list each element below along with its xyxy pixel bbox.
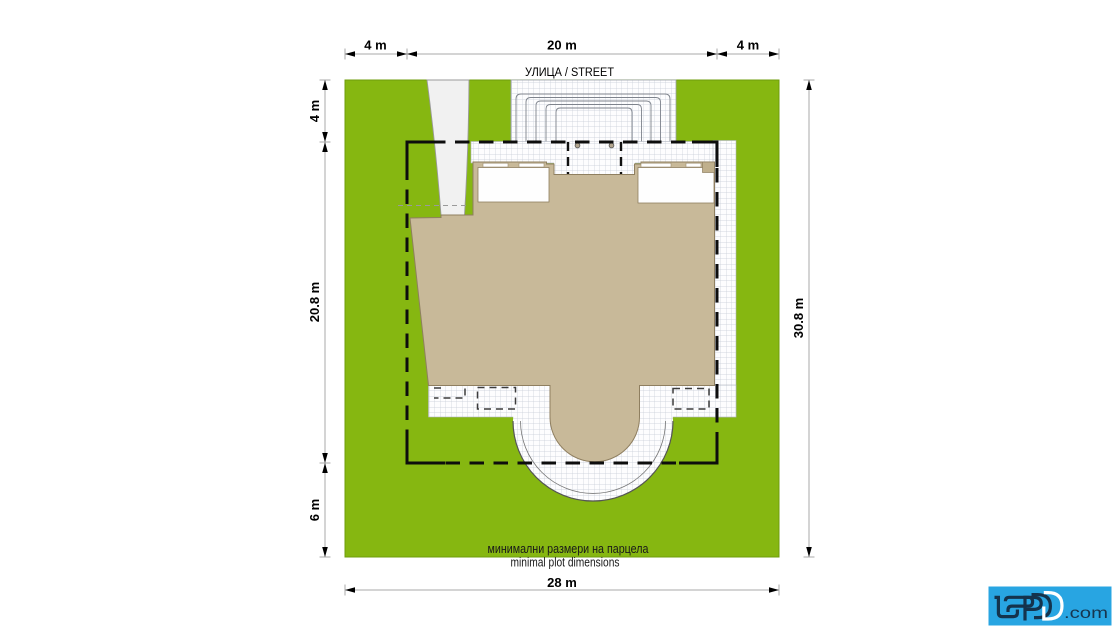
svg-text:минимални размери на парцела: минимални размери на парцела bbox=[488, 542, 649, 556]
svg-text:28 m: 28 m bbox=[547, 575, 577, 590]
svg-text:6 m: 6 m bbox=[307, 499, 322, 521]
svg-text:20.8 m: 20.8 m bbox=[307, 282, 322, 322]
svg-text:minimal plot dimensions: minimal plot dimensions bbox=[511, 556, 620, 570]
svg-text:30.8 m: 30.8 m bbox=[791, 298, 806, 338]
svg-text:4 m: 4 m bbox=[307, 100, 322, 122]
svg-text:.com: .com bbox=[1064, 605, 1108, 622]
svg-text:4 m: 4 m bbox=[737, 38, 759, 53]
svg-text:УЛИЦА / STREET: УЛИЦА / STREET bbox=[525, 65, 614, 79]
svg-text:20 m: 20 m bbox=[547, 38, 577, 53]
svg-text:4 m: 4 m bbox=[364, 38, 386, 53]
